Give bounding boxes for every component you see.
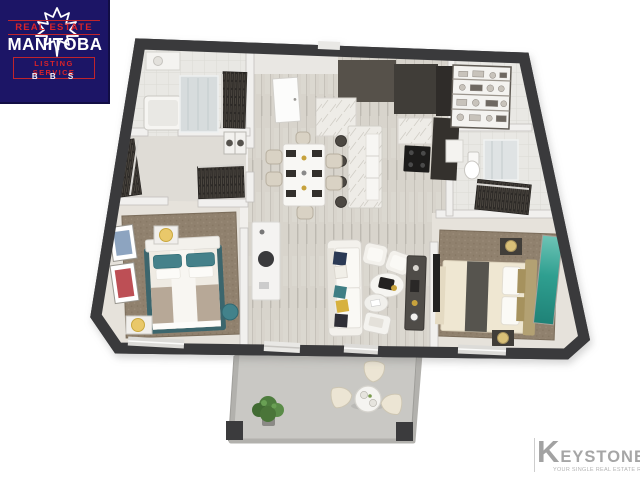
kitchen-island — [348, 126, 382, 208]
keystone-divider — [534, 438, 535, 472]
entry-opening — [318, 45, 340, 46]
keystone-name: EYSTONE — [560, 449, 640, 466]
tv-console — [405, 256, 427, 331]
mls-real-estate-text: REAL ESTATE — [8, 20, 100, 35]
keystone-tagline: YOUR SINGLE REAL ESTATE RESOURCE — [553, 467, 637, 473]
lamp — [132, 319, 145, 332]
bed-secondary — [435, 256, 538, 335]
real-estate-listing-image: REAL ESTATE MANITOBA LISTING SERVICE B B… — [0, 0, 640, 480]
entry-door — [272, 77, 300, 123]
upper-cabinets — [338, 60, 396, 102]
shower-2 — [484, 140, 518, 180]
balcony-post — [396, 422, 413, 441]
vanity-2 — [446, 140, 463, 162]
apartment-unit — [96, 44, 584, 354]
pantry-shelves — [451, 65, 511, 129]
lamp — [160, 229, 173, 242]
sofa — [327, 240, 363, 337]
mls-manitoba-text: MANITOBA — [2, 34, 109, 55]
lamp — [498, 333, 509, 344]
keystone-logo: K EYSTONE YOUR SINGLE REAL ESTATE RESOUR… — [537, 436, 637, 476]
desk — [252, 222, 280, 300]
lamp — [506, 241, 517, 252]
mls-bbs-text: B B S — [0, 72, 110, 81]
balcony — [226, 352, 420, 442]
shower-1 — [180, 76, 218, 132]
desk-chair — [258, 251, 274, 267]
laundry-closet — [224, 132, 246, 154]
accent-stool — [222, 304, 238, 320]
sink-1 — [154, 57, 163, 66]
bed-primary — [143, 236, 226, 334]
cooktop — [403, 145, 430, 172]
keystone-initial: K — [537, 438, 559, 466]
armchair — [362, 242, 389, 267]
closet-2-rack — [475, 179, 532, 214]
mls-manitoba-logo: REAL ESTATE MANITOBA LISTING SERVICE B B… — [0, 0, 110, 104]
tv — [433, 254, 440, 312]
balcony-post — [226, 421, 243, 440]
